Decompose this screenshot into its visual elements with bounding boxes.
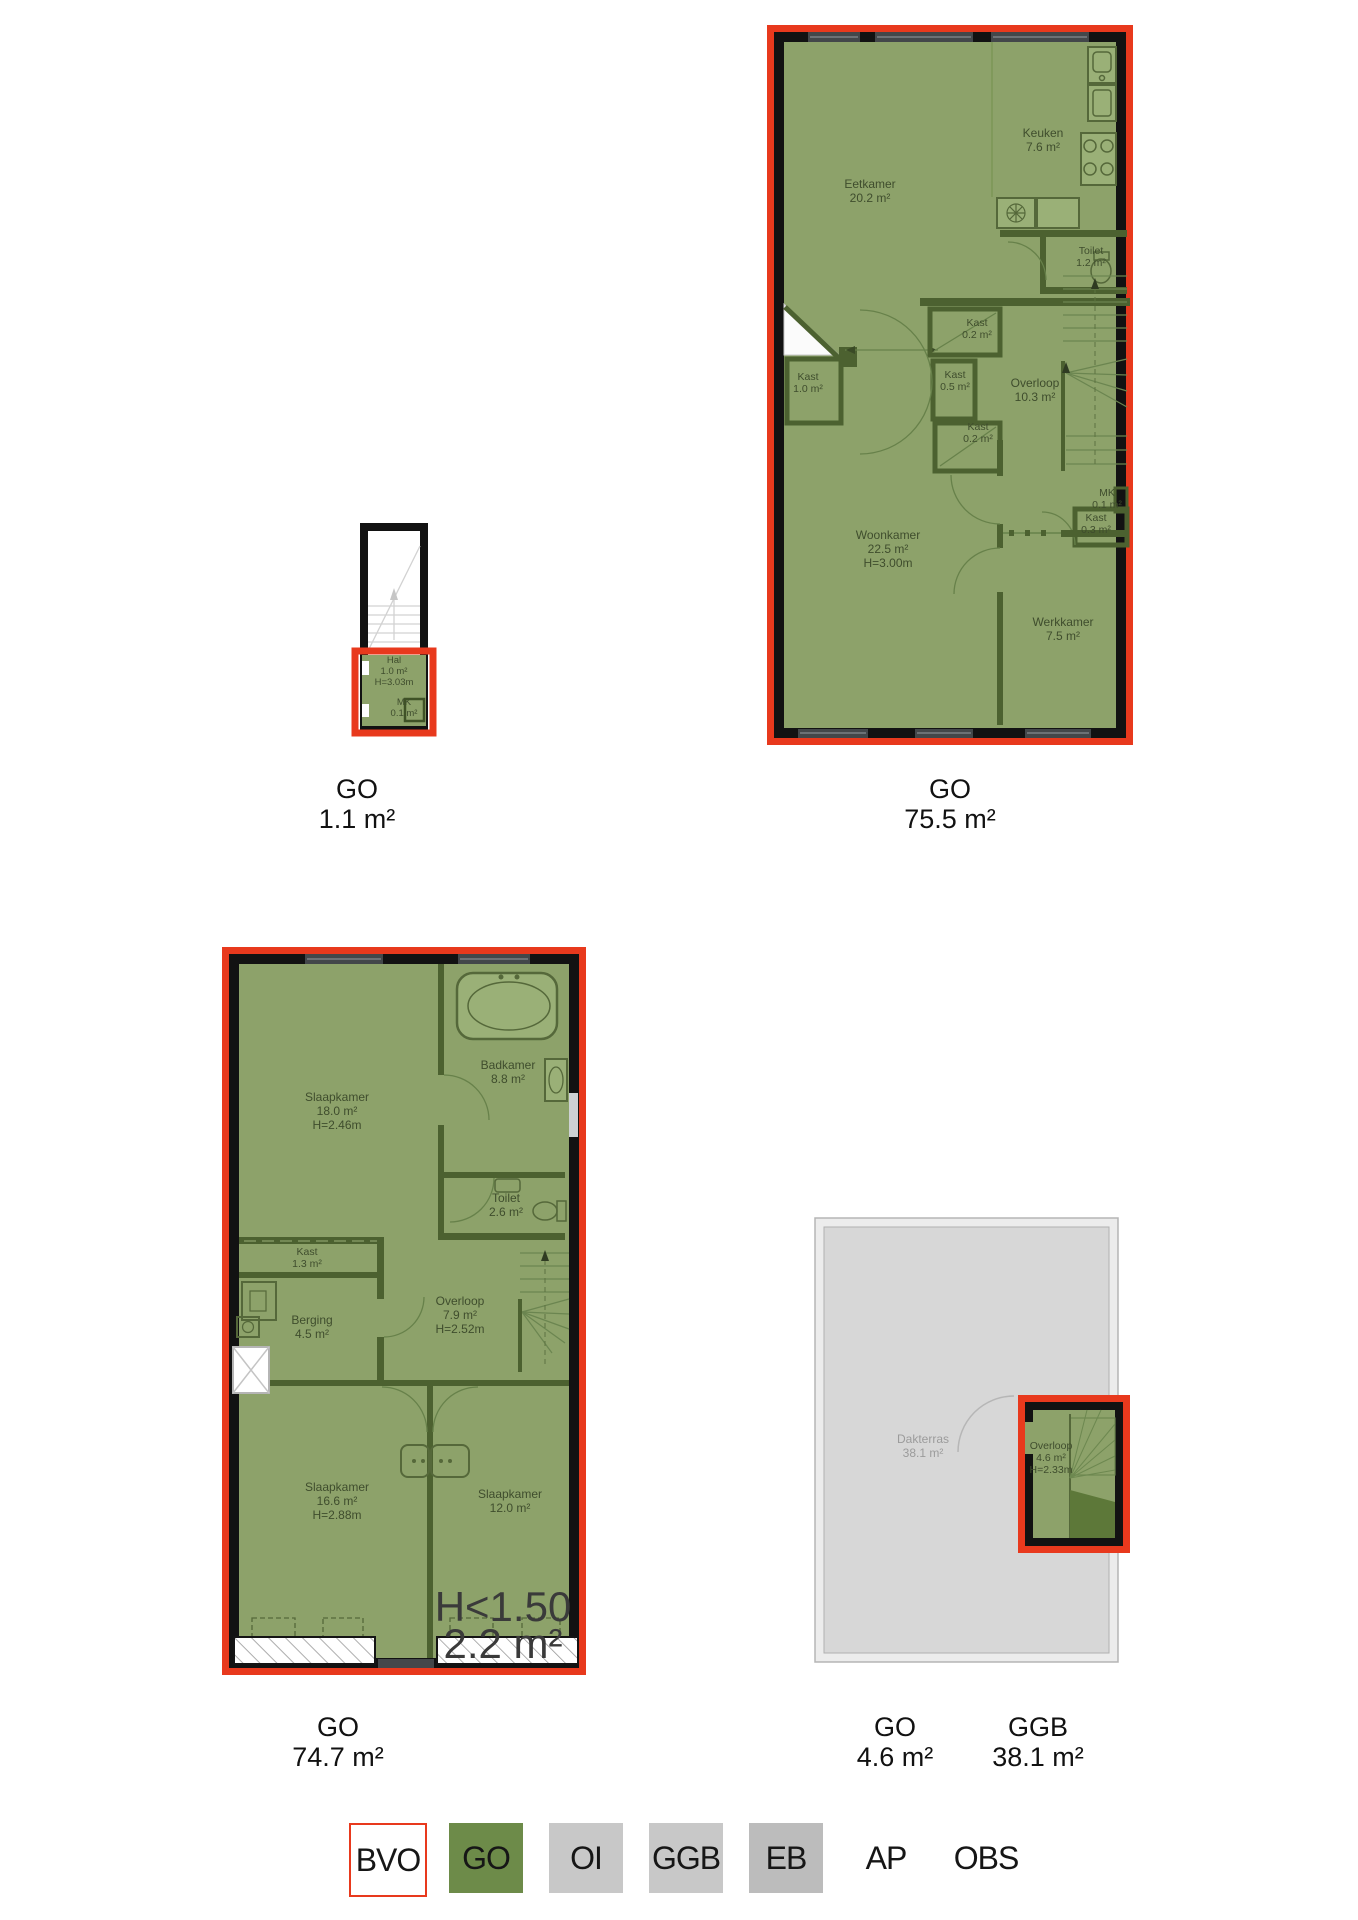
room-name: Toilet [1076,245,1106,257]
washer-icon [233,1347,269,1393]
room-label-kast-bottom: Kast 0.2 m² [963,421,993,445]
room-label-badkamer: Badkamer 8.8 m² [481,1058,536,1086]
room-area: 2.6 m² [489,1205,523,1219]
room-name: Overloop [1030,1440,1073,1452]
room-label-toilet-floor1: Toilet 1.2 m² [1076,245,1106,269]
caption-value: 74.7 m² [292,1742,384,1772]
bathtub-icon [457,973,557,1039]
room-name: Overloop [435,1294,484,1308]
room-label-kast-right: Kast 0.3 m² [1081,512,1111,536]
room-area: 0.2 m² [963,433,993,445]
room-label-kast-floor2: Kast 1.3 m² [292,1246,322,1270]
caption-go-roof: GO 4.6 m² [857,1712,934,1772]
caption-title: GO [857,1712,934,1742]
caption-go-stairwell: GO 1.1 m² [319,774,396,834]
legend-item-oi: OI [549,1823,623,1893]
room-name: Berging [291,1313,332,1327]
room-name: Dakterras [897,1432,949,1446]
room-label-overloop-floor1: Overloop 10.3 m² [1011,376,1060,404]
room-area: 7.5 m² [1032,629,1093,643]
room-label-mk-stairwell: MK 0.1 m² [391,697,418,719]
roof-plan-drawing [805,1208,1145,1674]
room-name: Kast [963,421,993,433]
legend-item-go: GO [449,1823,523,1893]
legend-label: GGB [652,1840,720,1877]
room-label-overloop-floor2: Overloop 7.9 m² H=2.52m [435,1294,484,1336]
room-label-kast-mid: Kast 0.5 m² [940,369,970,393]
room-height: H=2.46m [305,1118,369,1132]
room-height: H=3.00m [856,556,920,570]
caption-go-floor1: GO 75.5 m² [904,774,996,834]
room-label-kast-left: Kast 1.0 m² [793,371,823,395]
room-label-woonkamer: Woonkamer 22.5 m² H=3.00m [856,528,920,570]
room-name: MK [391,697,418,708]
floorplan-page: Hal 1.0 m² H=3.03m MK 0.1 m² Eetkamer 20… [0,0,1358,1920]
room-label-werkkamer: Werkkamer 7.5 m² [1032,615,1093,643]
room-area: 8.8 m² [481,1072,536,1086]
room-name: Kast [793,371,823,383]
room-area: 4.6 m² [1030,1452,1073,1464]
legend-item-obs: OBS [949,1823,1023,1893]
fan-icon [1007,204,1025,222]
room-name: Werkkamer [1032,615,1093,629]
legend-item-ggb: GGB [649,1823,723,1893]
low-headroom-label: H<1.50 2.2 m² [435,1588,572,1662]
room-area: 0.3 m² [1081,524,1111,536]
room-area: 1.0 m² [375,666,414,677]
room-label-mk-floor1: MK 0.1 m² [1092,487,1122,511]
legend-label: OBS [954,1840,1019,1877]
legend-item-ap: AP [849,1823,923,1893]
room-area: 10.3 m² [1011,390,1060,404]
caption-value: 4.6 m² [857,1742,934,1772]
room-area: 0.1 m² [1092,499,1122,511]
caption-go-floor2: GO 74.7 m² [292,1712,384,1772]
legend-label: EB [766,1840,807,1877]
caption-title: GO [292,1712,384,1742]
room-name: Kast [940,369,970,381]
room-height: H=3.03m [375,677,414,688]
room-area: 1.0 m² [793,383,823,395]
room-name: Slaapkamer [305,1480,369,1494]
room-area: 18.0 m² [305,1104,369,1118]
room-name: Kast [962,317,992,329]
caption-title: GO [319,774,396,804]
room-label-berging: Berging 4.5 m² [291,1313,332,1341]
room-label-toilet-floor2: Toilet 2.6 m² [489,1191,523,1219]
room-label-hal: Hal 1.0 m² H=3.03m [375,655,414,688]
room-label-slaapkamer-3: Slaapkamer 12.0 m² [478,1487,542,1515]
room-label-overloop-roof: Overloop 4.6 m² H=2.33m [1030,1440,1073,1476]
room-area: 4.5 m² [291,1327,332,1341]
room-name: Slaapkamer [305,1090,369,1104]
legend-label: GO [462,1840,510,1877]
room-area: 7.9 m² [435,1308,484,1322]
legend-label: BVO [356,1842,421,1879]
legend-label: OI [570,1840,602,1877]
caption-value: 38.1 m² [992,1742,1084,1772]
room-area: 16.6 m² [305,1494,369,1508]
low-height-hatch [234,1637,375,1664]
legend-item-eb: EB [749,1823,823,1893]
room-name: Hal [375,655,414,666]
room-area: 12.0 m² [478,1501,542,1515]
caption-title: GGB [992,1712,1084,1742]
room-name: Eetkamer [844,177,895,191]
room-label-kast-top: Kast 0.2 m² [962,317,992,341]
sink-icon [545,1059,567,1101]
room-name: Kast [292,1246,322,1258]
caption-ggb-roof: GGB 38.1 m² [992,1712,1084,1772]
room-area: 0.5 m² [940,381,970,393]
room-label-slaapkamer-1: Slaapkamer 18.0 m² H=2.46m [305,1090,369,1132]
room-area: 0.2 m² [962,329,992,341]
room-label-keuken: Keuken 7.6 m² [1023,126,1064,154]
room-height: H=2.52m [435,1322,484,1336]
room-area: 7.6 m² [1023,140,1064,154]
floor2-plan-drawing [218,943,590,1680]
room-label-slaapkamer-2: Slaapkamer 16.6 m² H=2.88m [305,1480,369,1522]
room-area: 0.1 m² [391,708,418,719]
room-height: H=2.33m [1030,1464,1073,1476]
caption-title: GO [904,774,996,804]
room-height: H=2.88m [305,1508,369,1522]
room-name: MK [1092,487,1122,499]
room-area: 1.2 m² [1076,257,1106,269]
room-area: 20.2 m² [844,191,895,205]
room-name: Overloop [1011,376,1060,390]
room-name: Keuken [1023,126,1064,140]
room-name: Kast [1081,512,1111,524]
room-area: 22.5 m² [856,542,920,556]
low-headroom-area: 2.2 m² [435,1625,572,1662]
caption-value: 1.1 m² [319,804,396,834]
room-label-dakterras: Dakterras 38.1 m² [897,1432,949,1460]
legend-label: AP [866,1840,907,1877]
room-name: Slaapkamer [478,1487,542,1501]
room-name: Badkamer [481,1058,536,1072]
room-name: Toilet [489,1191,523,1205]
legend-item-bvo: BVO [349,1823,427,1897]
room-name: Woonkamer [856,528,920,542]
caption-value: 75.5 m² [904,804,996,834]
room-label-eetkamer: Eetkamer 20.2 m² [844,177,895,205]
room-area: 1.3 m² [292,1258,322,1270]
room-area: 38.1 m² [897,1446,949,1460]
